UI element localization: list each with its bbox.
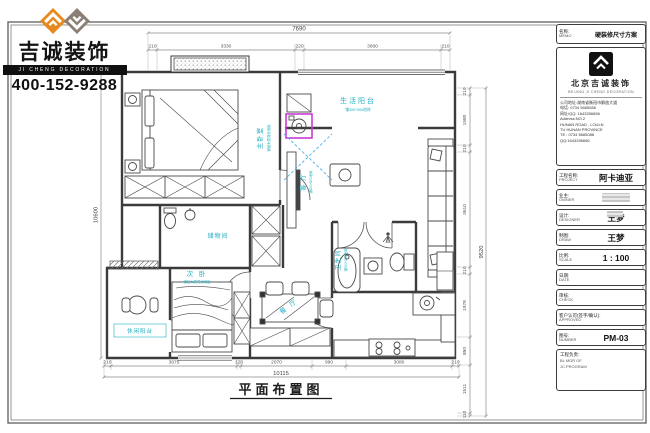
titleblock-row-owner: 业主:OWNER <box>556 189 646 206</box>
dim-right-1: 1580 <box>462 114 468 125</box>
brand-phone: 400-152-9288 <box>12 77 118 95</box>
furniture-dining-room <box>250 282 333 346</box>
room-label-living-room: 客 厅 <box>298 173 307 191</box>
stove <box>369 339 415 356</box>
project-label-en: PROJECT <box>559 178 589 183</box>
company-qq-en: QQ:1643256656 <box>560 138 642 143</box>
room-label-master-bedroom: 主卧室 <box>255 127 264 150</box>
name-value: 硬装修尺寸方案 <box>589 30 643 39</box>
dimensions-right: 210 1580 210 3610 210 1978 890 1511 110 … <box>462 87 488 419</box>
scale-label-en: SCALE <box>559 258 589 263</box>
check-label-en: CHECK <box>559 298 589 303</box>
dim-bottom-total: 10115 <box>273 371 289 377</box>
jicheng-logo-icon <box>39 0 91 42</box>
number-label-en: NUMBER <box>559 338 589 343</box>
company-logo-icon <box>589 52 613 76</box>
furniture-corridor-cabinets <box>252 206 280 266</box>
room-sub-service-balcony: 铺300*300地砖 <box>345 107 371 112</box>
owner-label-en: OWNER <box>559 198 589 203</box>
furniture-service-balcony <box>286 94 312 138</box>
dim-top-0: 210 <box>148 44 156 50</box>
dimensions-left: 10600 <box>94 71 103 360</box>
draw-value: 王梦 <box>589 232 643 244</box>
brand-block: 吉诚装饰 JI CHENG DECORATION 400-152-9288 <box>1 0 128 95</box>
dim-right-8: 110 <box>462 410 468 418</box>
shower-head-icon <box>383 233 393 243</box>
company-name-en: BEIJING JI CHENG DECORATION <box>568 90 634 94</box>
censored-patch <box>607 211 623 217</box>
titleblock-row-date: 日期:DATE <box>556 269 646 286</box>
dim-top-4: 210 <box>441 44 449 50</box>
drawing-title-text: 平面布置图 <box>238 382 323 397</box>
designer-label-en: DESIGNER <box>559 218 589 223</box>
title-block: 名称: MEMO 硬装修尺寸方案 北京吉诚装饰 BEIJING JI CHENG… <box>556 24 646 423</box>
company-info: 公司地址:湖南省衡阳市解放大道 电话: 0734 5685088 网址/QQ: … <box>560 97 642 143</box>
room-sub-second-bedroom: 铺贴木质强化地板 <box>183 279 211 284</box>
name-label-en: MEMO <box>559 34 589 39</box>
titleblock-row-approved: 客户认可(签字/确认):APPROVED <box>556 309 646 326</box>
name-label: 名称: MEMO <box>559 29 589 39</box>
drawing-sheet: 生活阳台 铺300*300地砖 主卧室 铺贴木质强化地板 客 厅 铺800*80… <box>0 0 650 433</box>
titleblock-row-number: 图号:NUMBER PM-03 <box>556 329 646 346</box>
project-value: 阿卡迪亚 <box>589 172 643 184</box>
dim-right-3: 3610 <box>462 204 468 215</box>
room-label-service-balcony: 生活阳台 <box>340 96 376 105</box>
dim-top-1: 3330 <box>221 44 232 50</box>
furniture-second-bedroom <box>172 282 250 352</box>
dim-right-4: 210 <box>462 266 468 274</box>
furniture-leisure-balcony <box>122 296 158 314</box>
dim-right-6: 890 <box>462 347 468 355</box>
dim-right-2: 210 <box>462 144 468 152</box>
dim-bottom-3: 2070 <box>271 360 282 366</box>
room-label-leisure-balcony: 休闲阳台 <box>127 327 153 335</box>
number-value: PM-03 <box>589 333 643 343</box>
scale-value: 1 : 100 <box>589 253 643 263</box>
titleblock-row-draw: 制图:DRAW 王梦 <box>556 229 646 246</box>
dim-top-2: 220 <box>295 44 303 50</box>
room-sub-living-room: 铺800*800地砖 <box>308 170 313 193</box>
dim-bottom-4: 990 <box>325 360 333 366</box>
censored-owner-name <box>602 193 630 202</box>
dim-bottom-2: 120 <box>235 360 243 366</box>
room-sub-master-bedroom: 铺贴木质强化地板 <box>266 124 271 152</box>
footer-line-2: JC.PROGRAM <box>560 364 642 370</box>
drawing-title: 平面布置图 <box>230 382 332 399</box>
titleblock-row-project: 工程名称:PROJECT 阿卡迪亚 <box>556 169 646 186</box>
dim-right-7: 1511 <box>462 384 468 395</box>
brand-name-en: JI CHENG DECORATION <box>3 65 127 75</box>
balcony-railing <box>110 261 158 269</box>
dim-right-5: 1978 <box>462 300 468 311</box>
furniture-kitchen <box>334 292 455 357</box>
dimensions-bottom: 210 3675 120 2070 990 3080 210 10115 <box>103 360 461 379</box>
company-name-cn: 北京吉诚装饰 <box>571 78 631 89</box>
room-sub-bathroom: 铺300*300地砖 <box>343 248 348 271</box>
furniture-storage-room <box>164 208 195 229</box>
titleblock-company-box: 北京吉诚装饰 BEIJING JI CHENG DECORATION 公司地址:… <box>556 47 646 166</box>
brand-name-cn: 吉诚装饰 <box>19 42 111 63</box>
dim-top-3: 3660 <box>367 44 378 50</box>
titleblock-row-scale: 比例:SCALE 1 : 100 <box>556 249 646 266</box>
draw-label-en: DRAW <box>559 238 589 243</box>
titleblock-name-row: 名称: MEMO 硬装修尺寸方案 <box>556 24 646 44</box>
bay-window-sill <box>174 58 246 70</box>
titleblock-footer: 工程负责: BL MGR OF JC.PROGRAM <box>556 349 646 391</box>
approved-label-en: APPROVED <box>559 318 607 323</box>
dim-top-total: 7690 <box>292 27 306 33</box>
room-label-storage: 储物间 <box>207 232 228 240</box>
room-label-second-bedroom: 次 卧 <box>187 269 208 278</box>
dim-right-total: 9520 <box>479 246 485 259</box>
dim-bottom-6: 210 <box>451 360 459 366</box>
dim-left-total: 10600 <box>94 207 100 223</box>
dimensions-top: 7690 210 3330 220 3660 210 <box>147 27 452 52</box>
dim-bottom-5: 3080 <box>394 360 405 366</box>
dim-bottom-1: 3675 <box>169 360 180 366</box>
titleblock-row-designer: 设计:DESIGNER 王梦 <box>556 209 646 226</box>
room-label-bathroom: 卫生间 <box>334 249 342 270</box>
titleblock-row-check: 审核:CHECK <box>556 289 646 306</box>
date-label-en: DATE <box>559 278 589 283</box>
dim-bottom-0: 210 <box>103 360 111 366</box>
dim-right-0: 210 <box>462 87 468 95</box>
furniture-master-bedroom <box>125 90 244 198</box>
